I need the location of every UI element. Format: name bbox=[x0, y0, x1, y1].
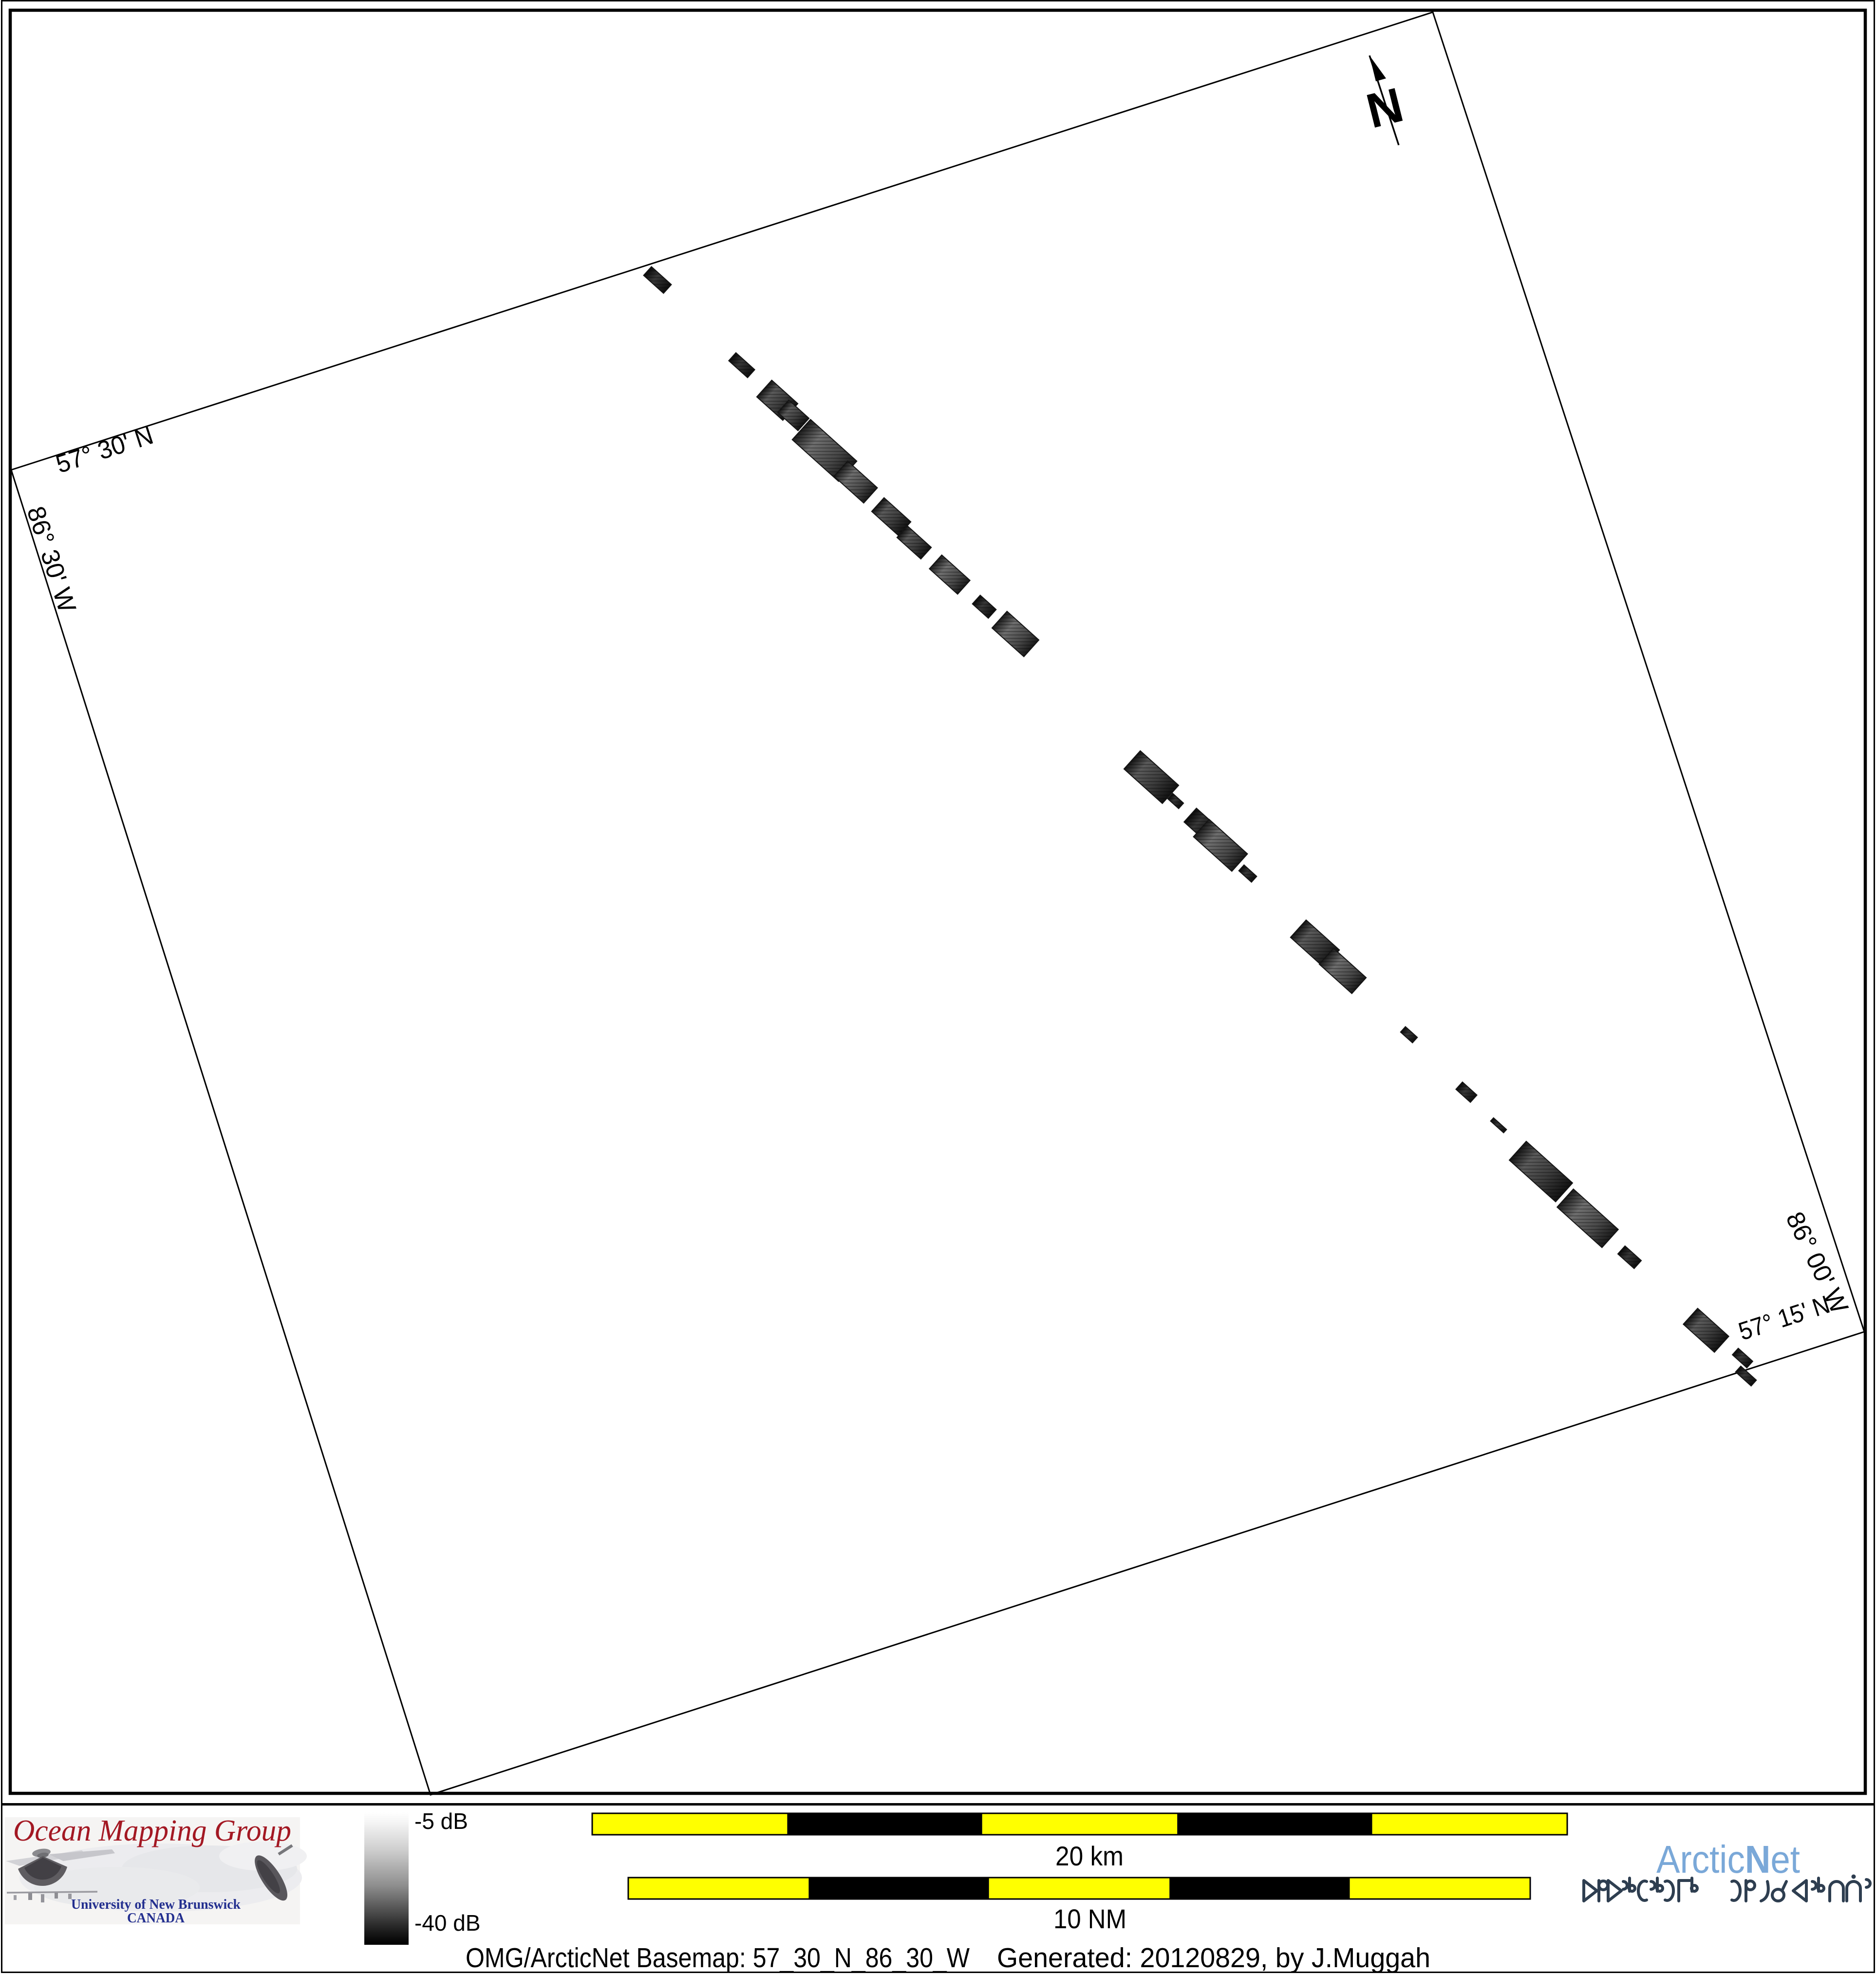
svg-text:-5 dB: -5 dB bbox=[414, 1808, 468, 1834]
svg-text:20 km: 20 km bbox=[1055, 1841, 1124, 1871]
svg-text:-40 dB: -40 dB bbox=[414, 1910, 481, 1936]
svg-text:CANADA: CANADA bbox=[127, 1910, 185, 1926]
svg-text:OMG/ArcticNet Basemap: 57_30_N: OMG/ArcticNet Basemap: 57_30_N_86_30_W bbox=[466, 1942, 970, 1974]
svg-text:10 NM: 10 NM bbox=[1053, 1903, 1126, 1934]
svg-text:Generated: 20120829, by J.Mugg: Generated: 20120829, by J.Muggah bbox=[997, 1942, 1430, 1974]
svg-text:ArcticNet: ArcticNet bbox=[1656, 1838, 1800, 1881]
svg-text:Ocean Mapping Group: Ocean Mapping Group bbox=[13, 1814, 291, 1847]
